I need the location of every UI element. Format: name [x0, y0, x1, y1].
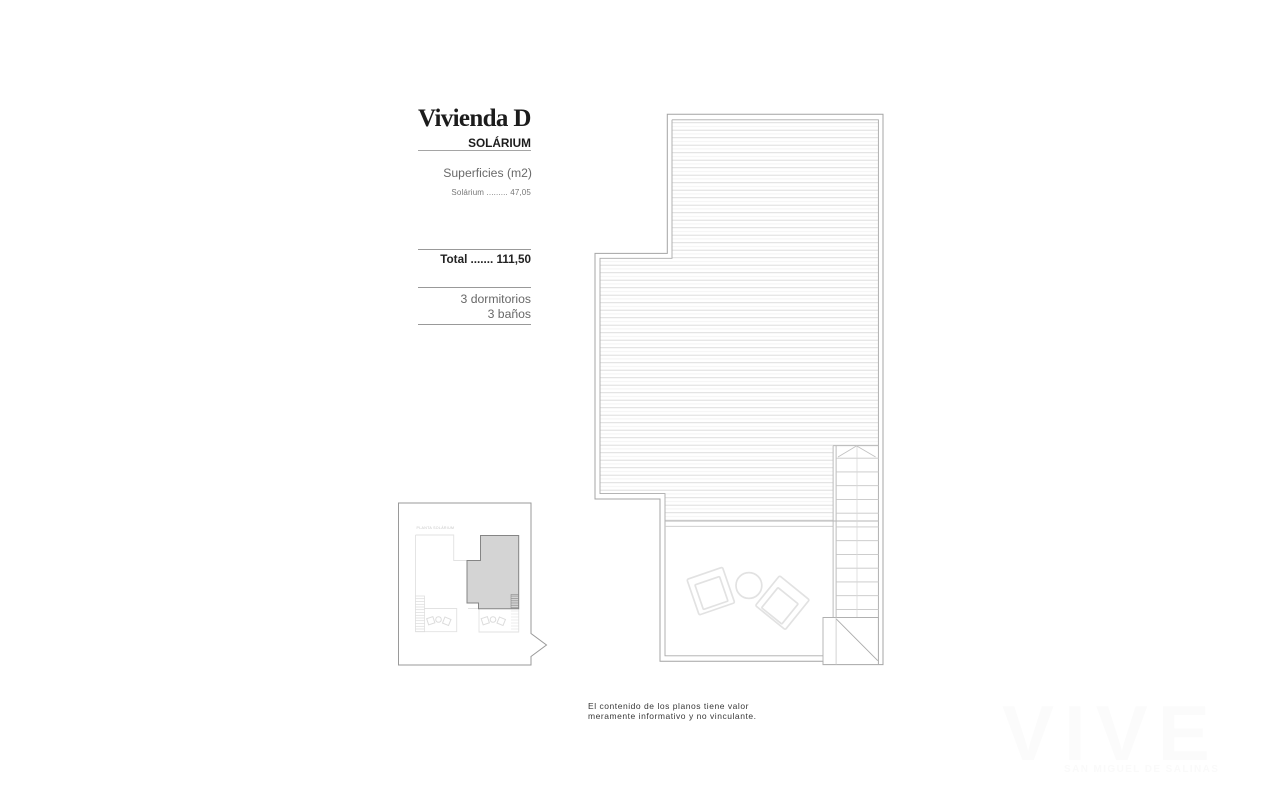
svg-text:PLANTA SOLÁRIUM: PLANTA SOLÁRIUM	[417, 526, 455, 530]
